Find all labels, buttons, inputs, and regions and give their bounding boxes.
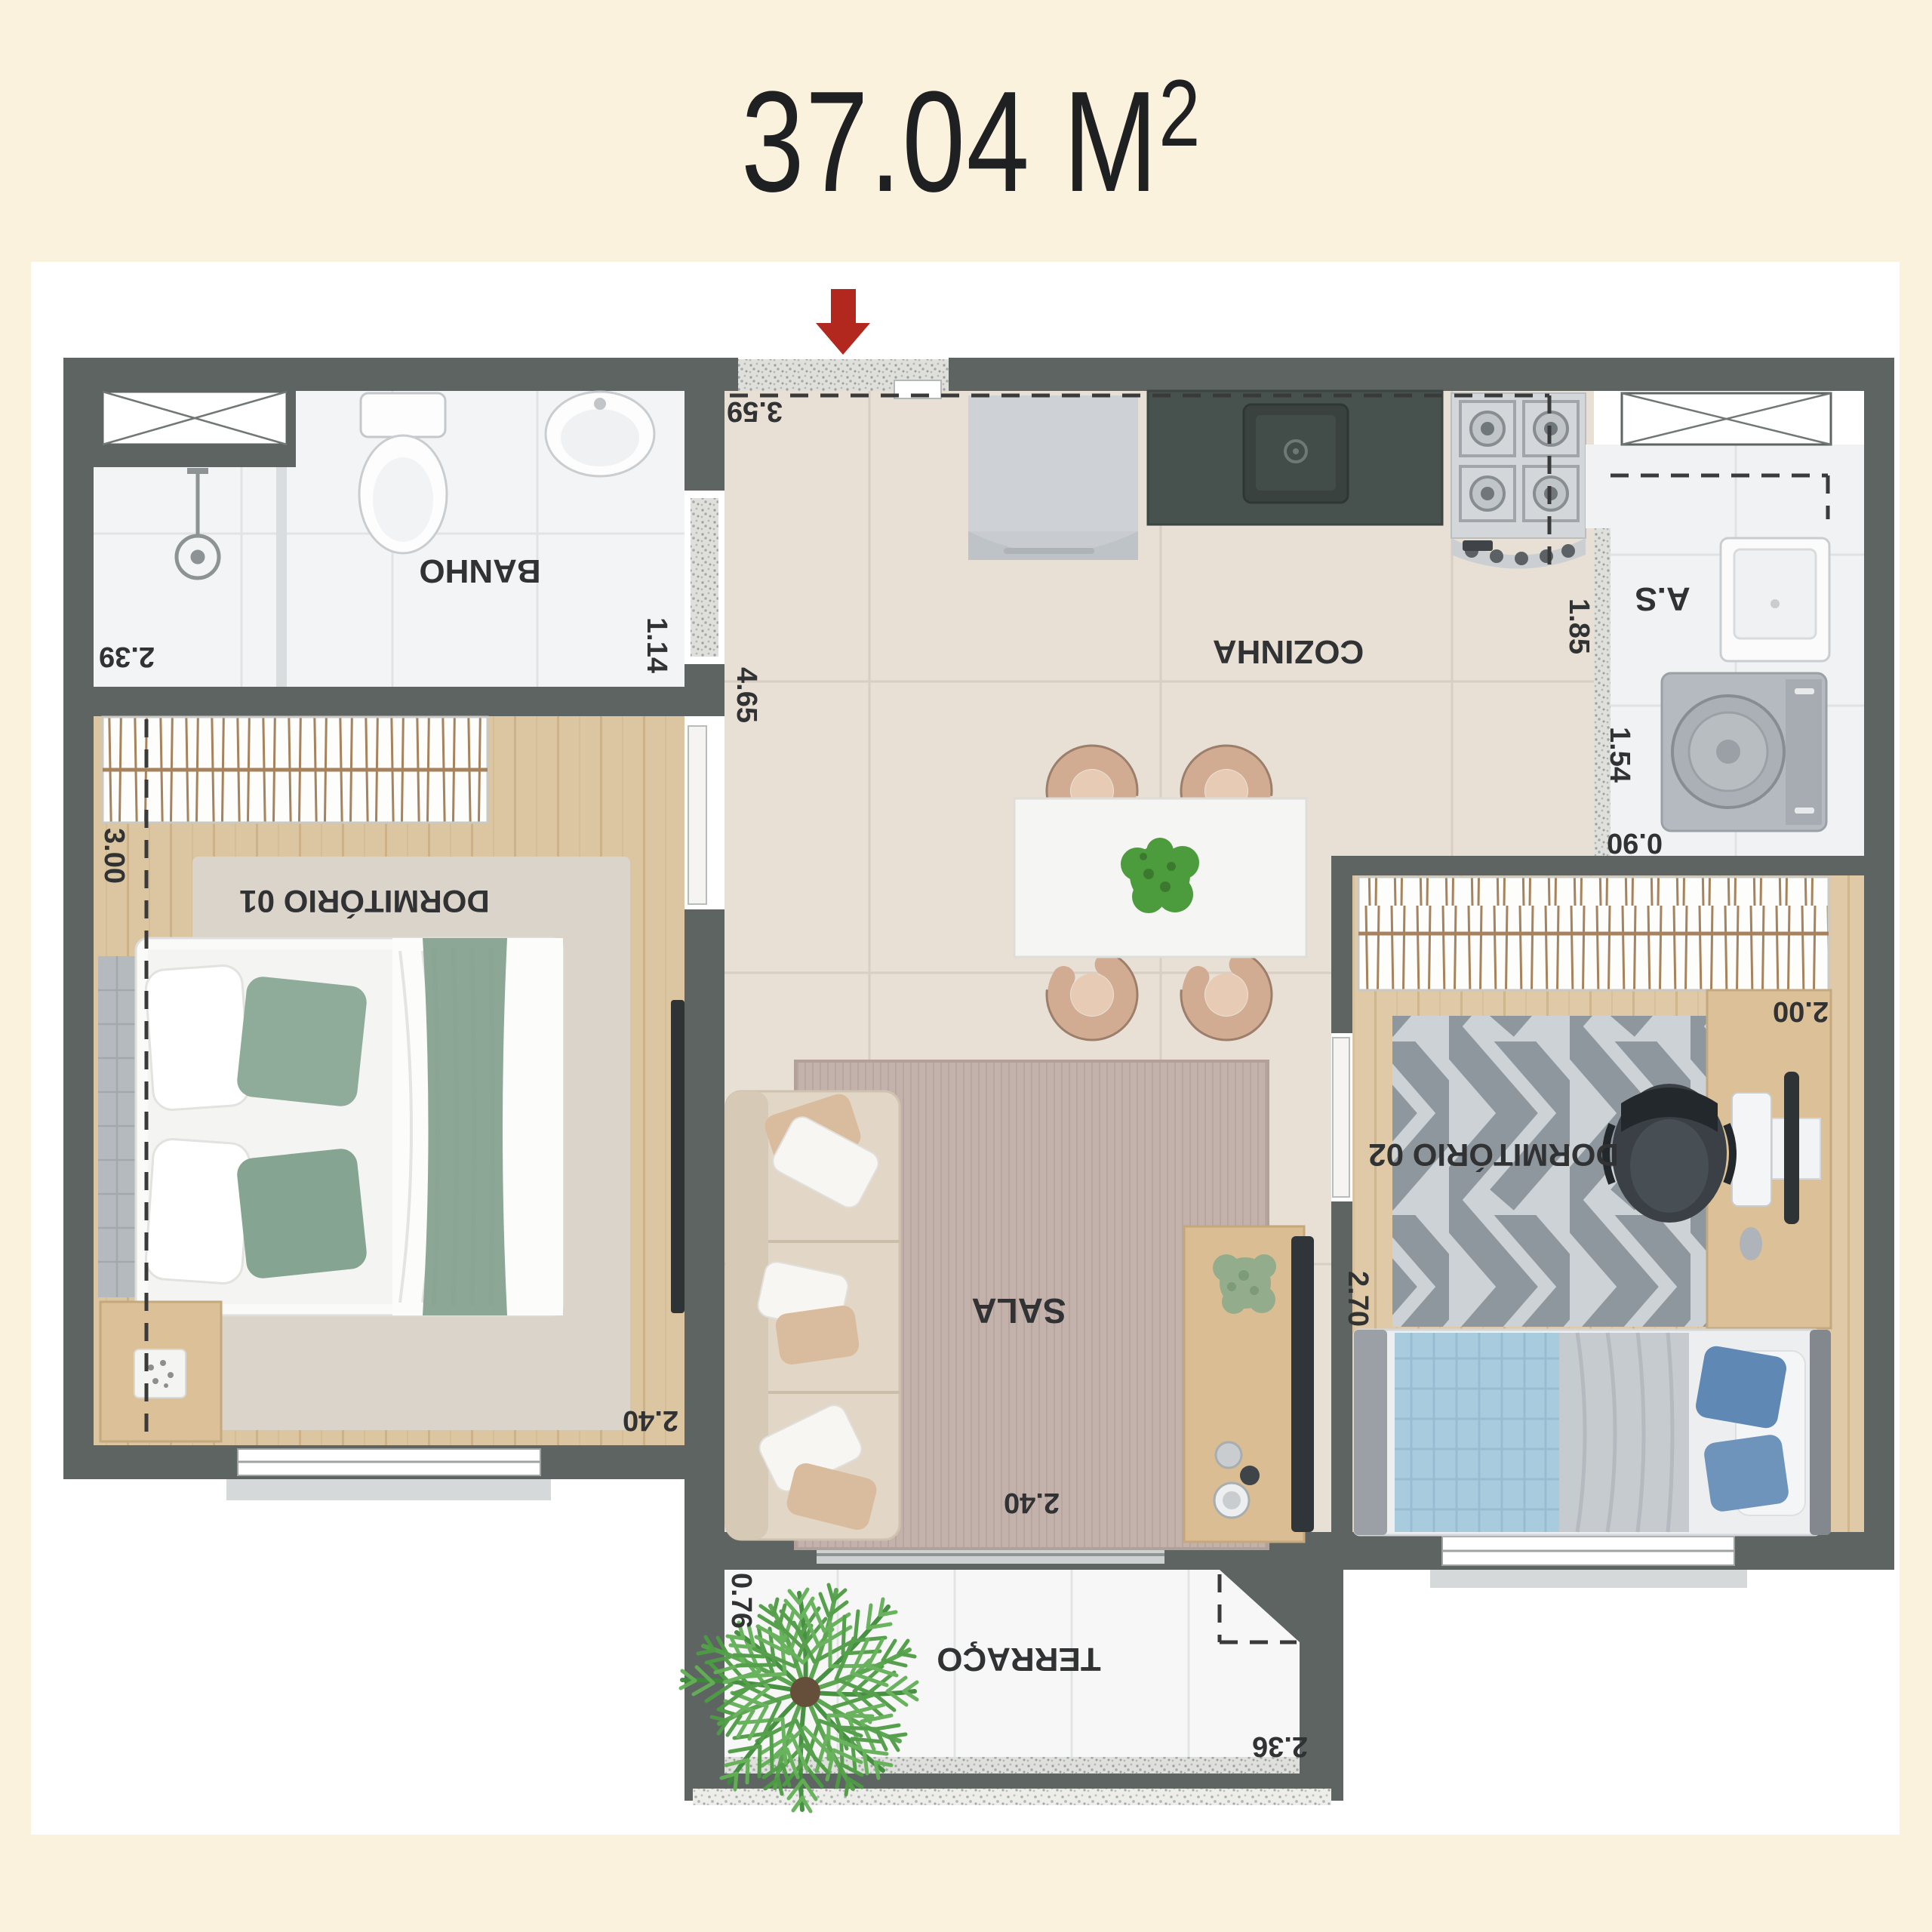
svg-text:2.70: 2.70 [1342,1271,1374,1327]
svg-text:0.76: 0.76 [725,1573,757,1629]
svg-text:BANHO: BANHO [419,552,540,589]
svg-text:TERRAÇO: TERRAÇO [937,1641,1101,1678]
svg-text:A.S: A.S [1635,580,1690,617]
svg-text:4.65: 4.65 [731,667,762,723]
svg-text:DORMITÓRIO 01: DORMITÓRIO 01 [239,884,489,920]
svg-text:2.00: 2.00 [1773,995,1829,1027]
svg-text:0.90: 0.90 [1607,827,1663,859]
svg-text:1.14: 1.14 [641,617,672,673]
svg-text:DORMITÓRIO 02: DORMITÓRIO 02 [1368,1137,1618,1174]
svg-text:COZINHA: COZINHA [1213,633,1364,670]
svg-text:3.00: 3.00 [98,828,130,884]
svg-text:37.04 M2: 37.04 M2 [741,60,1201,222]
svg-text:2.39: 2.39 [99,641,155,672]
svg-text:3.59: 3.59 [727,395,783,427]
svg-text:1.85: 1.85 [1563,598,1595,654]
svg-text:2.40: 2.40 [1004,1487,1060,1518]
svg-text:2.36: 2.36 [1252,1730,1308,1762]
svg-text:1.54: 1.54 [1604,727,1635,783]
svg-text:2.40: 2.40 [623,1404,678,1436]
svg-text:SALA: SALA [971,1291,1066,1331]
